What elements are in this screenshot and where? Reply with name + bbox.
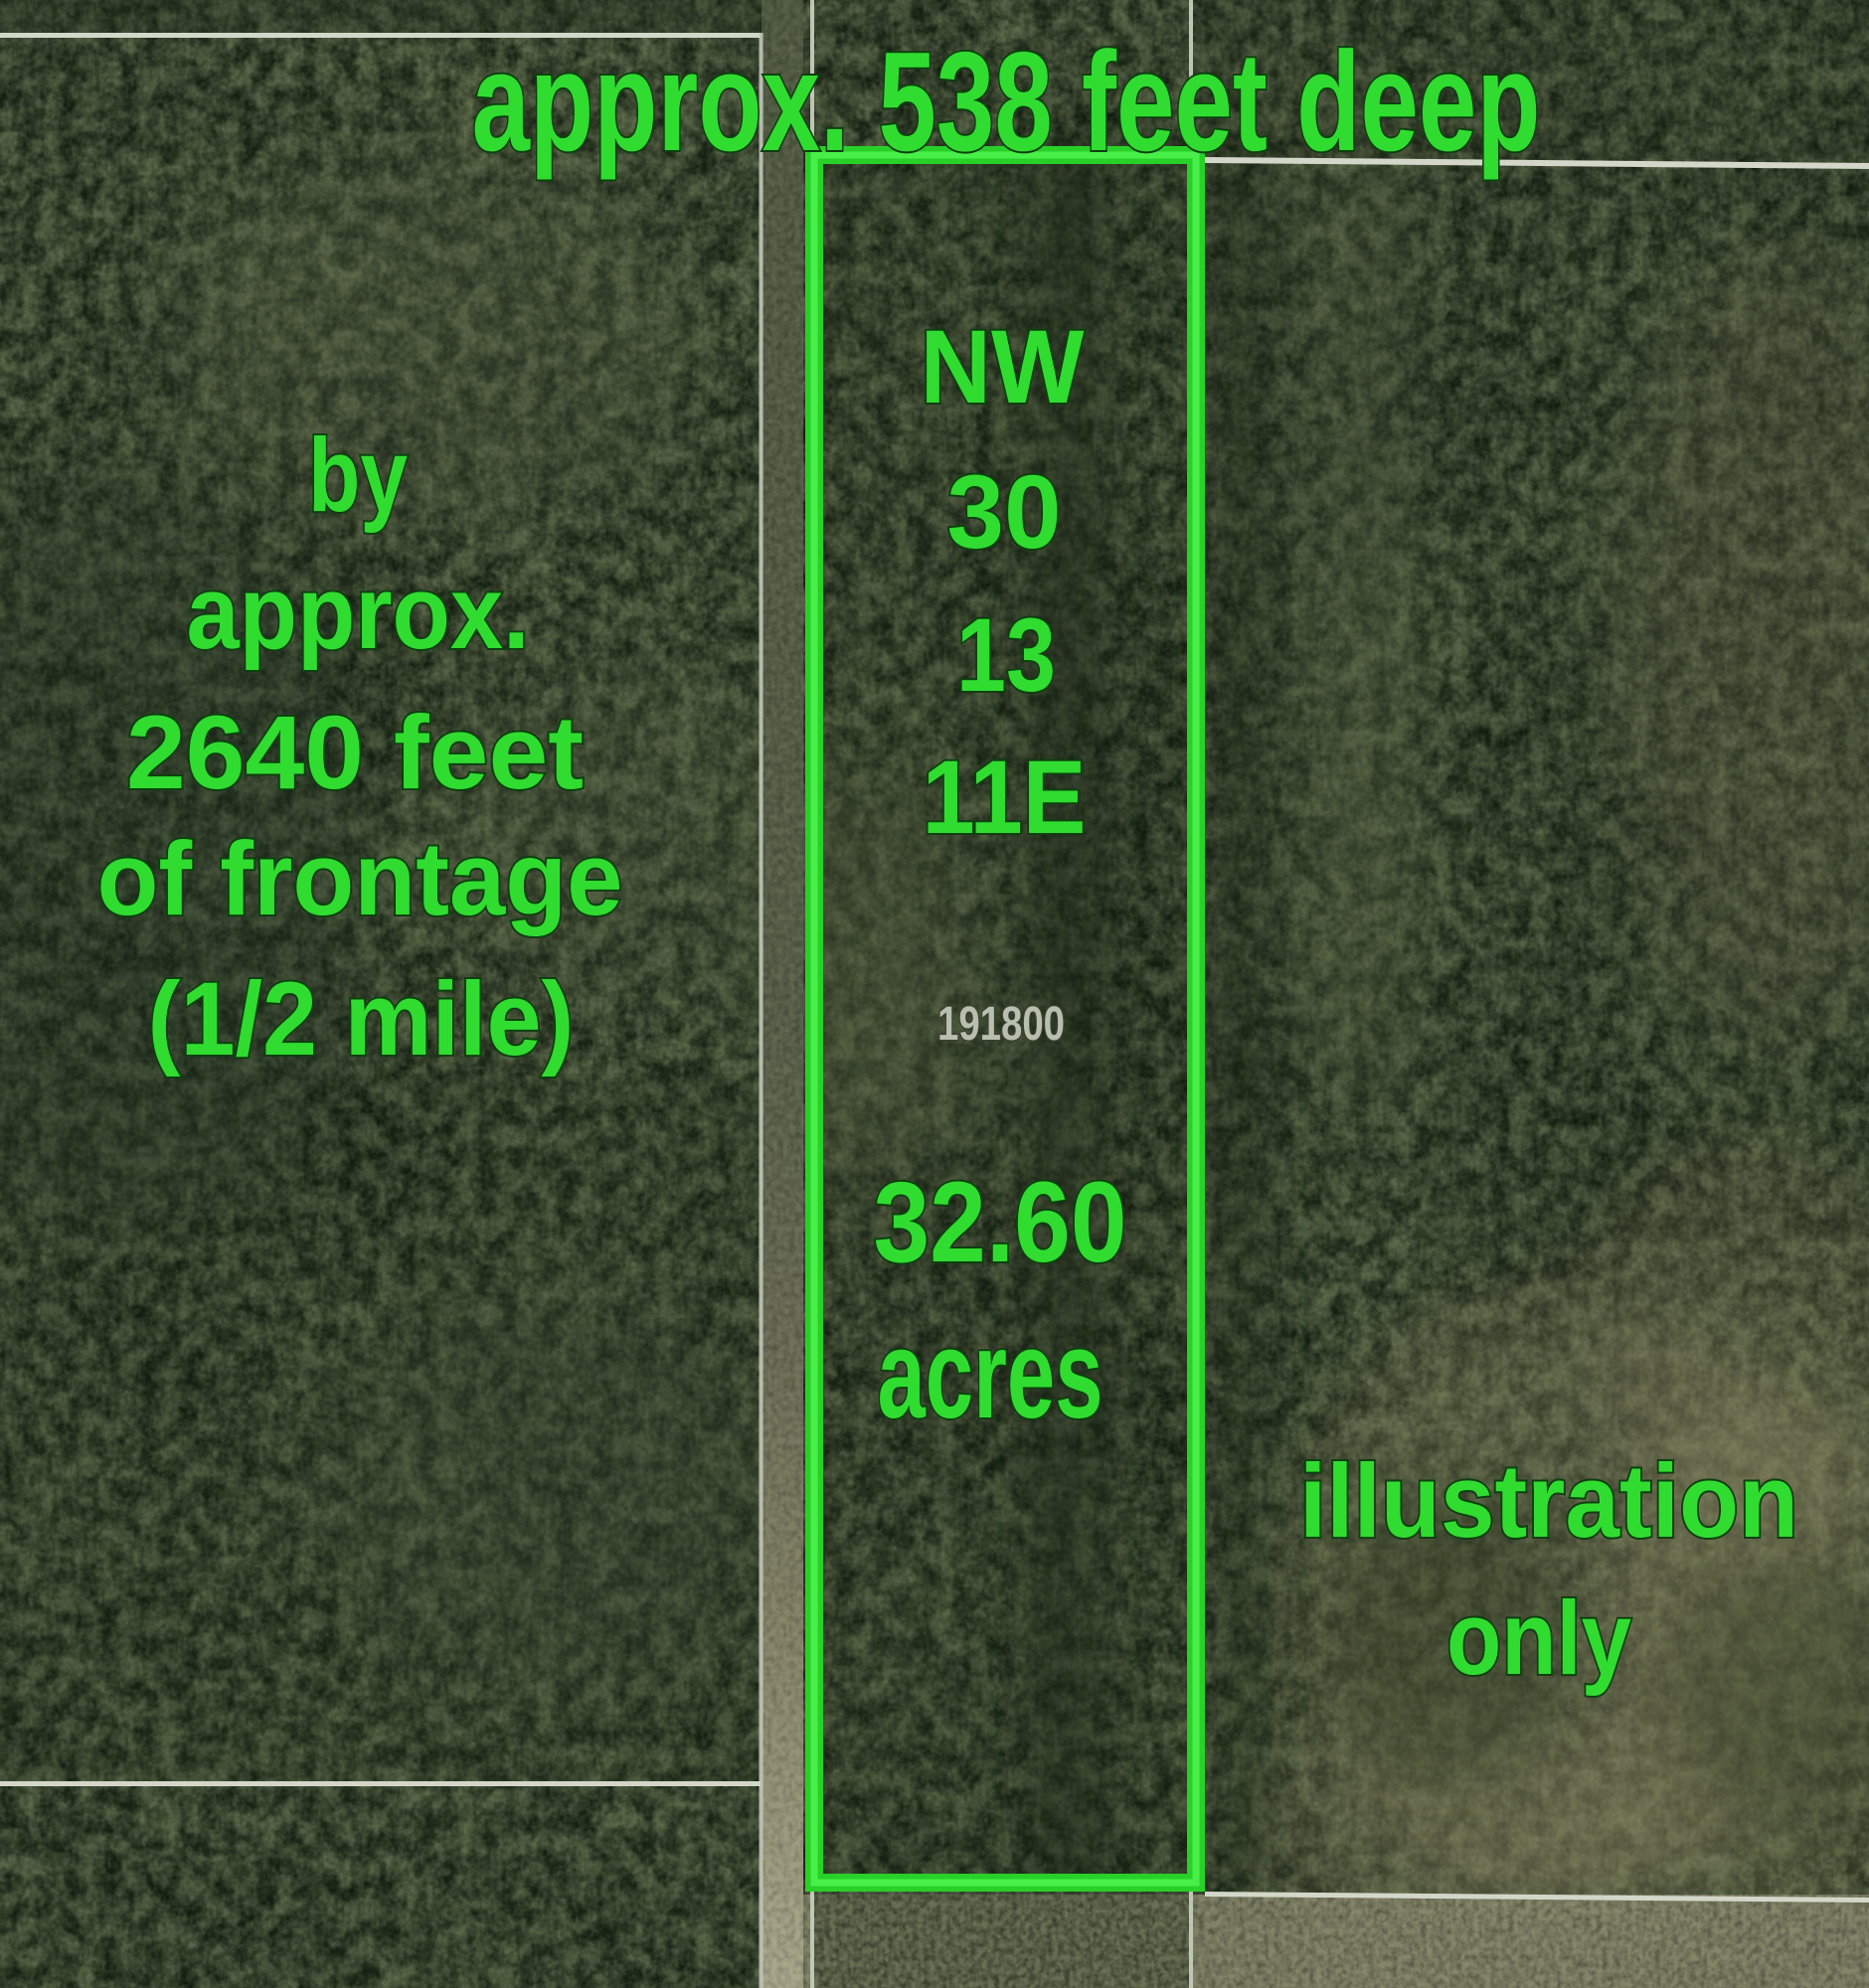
svg-text:13: 13: [956, 597, 1056, 714]
svg-text:11E: 11E: [923, 740, 1087, 856]
svg-text:NW: NW: [921, 309, 1085, 425]
svg-text:2640 feet: 2640 feet: [126, 695, 584, 811]
svg-text:acres: acres: [878, 1304, 1104, 1444]
svg-text:191800: 191800: [937, 998, 1065, 1051]
svg-text:approx. 538 feet deep: approx. 538 feet deep: [472, 23, 1541, 181]
svg-text:32.60: 32.60: [874, 1159, 1127, 1286]
svg-text:illustration: illustration: [1299, 1443, 1798, 1560]
svg-text:by: by: [308, 417, 408, 534]
svg-text:30: 30: [947, 454, 1062, 571]
svg-text:approx.: approx.: [187, 555, 530, 671]
svg-text:of frontage: of frontage: [97, 821, 623, 937]
svg-text:(1/2 mile): (1/2 mile): [148, 961, 575, 1077]
svg-text:only: only: [1446, 1580, 1631, 1697]
